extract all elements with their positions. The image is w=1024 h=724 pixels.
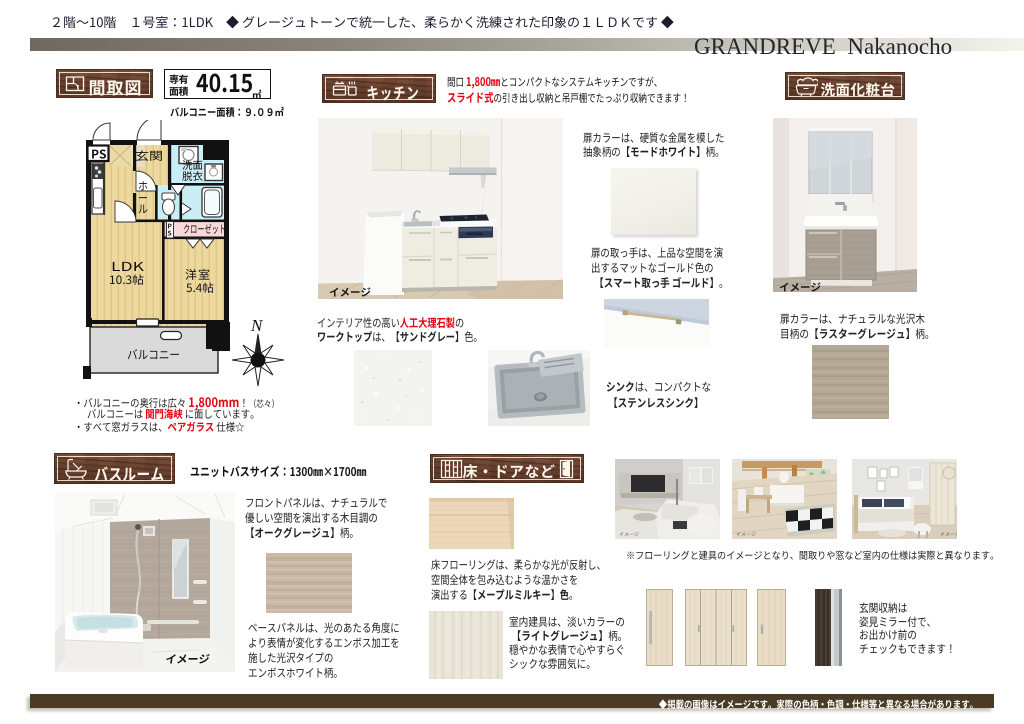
svg-text:玄関: 玄関 bbox=[135, 148, 163, 164]
svg-text:N: N bbox=[250, 316, 264, 335]
svg-text:PS: PS bbox=[91, 146, 107, 163]
svg-text:S: S bbox=[168, 228, 172, 238]
svg-text:ホール: ホール bbox=[136, 180, 151, 214]
svg-text:イメージ: イメージ bbox=[164, 651, 210, 667]
svg-text:10.3帖: 10.3帖 bbox=[109, 272, 144, 288]
svg-text:バルコニー: バルコニー bbox=[127, 346, 180, 363]
svg-text:イメージ: イメージ bbox=[619, 531, 639, 538]
svg-text:イメージ: イメージ bbox=[940, 531, 957, 538]
svg-text:脱衣: 脱衣 bbox=[182, 169, 203, 184]
svg-text:イメージ: イメージ bbox=[329, 285, 371, 299]
svg-text:イメージ: イメージ bbox=[736, 531, 756, 538]
svg-text:5.4帖: 5.4帖 bbox=[186, 280, 214, 296]
svg-text:クローゼット: クローゼット bbox=[183, 221, 226, 237]
svg-text:イメージ: イメージ bbox=[779, 280, 821, 292]
